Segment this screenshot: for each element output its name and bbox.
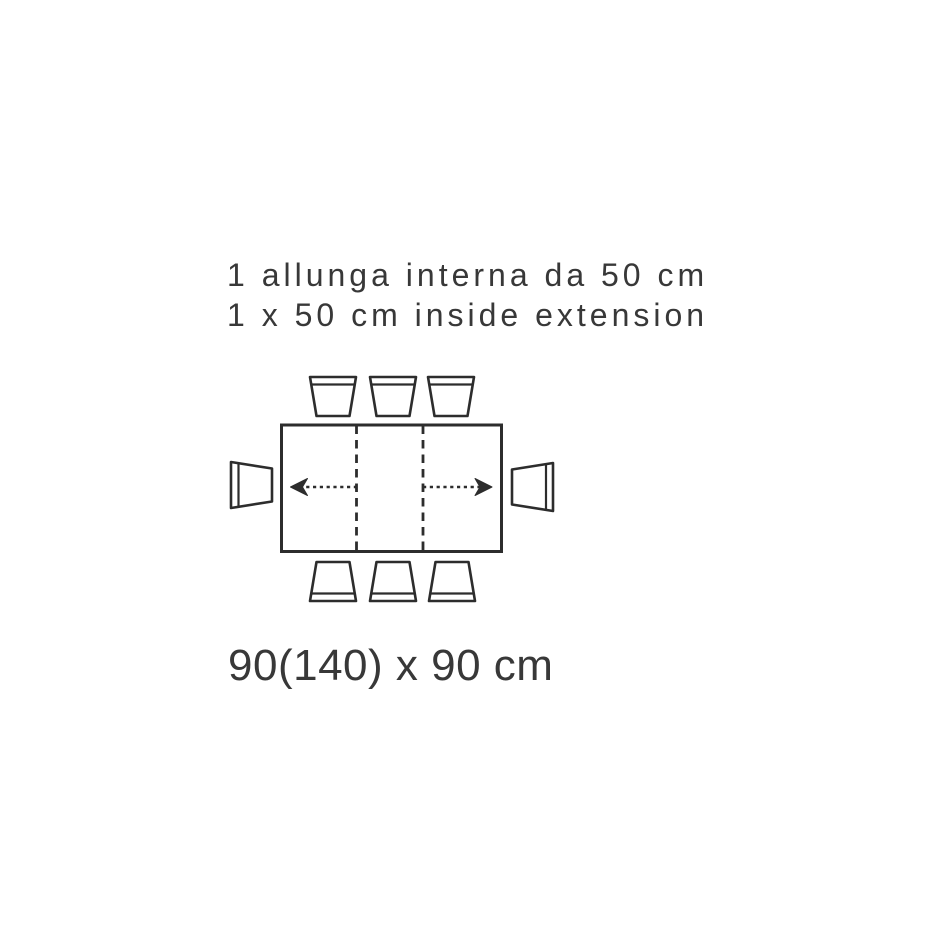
chair-bottom-1-icon [310,562,356,601]
table-plan-diagram [0,0,950,950]
dimension-label: 90(140) x 90 cm [228,644,553,688]
chair-bottom-3-icon [429,562,475,601]
chair-right-icon [512,463,553,511]
chair-bottom-2-icon [370,562,416,601]
product-diagram-canvas: 1 allunga interna da 50 cm 1 x 50 cm ins… [0,0,950,950]
chair-top-1-icon [310,377,356,416]
chair-top-2-icon [370,377,416,416]
chair-left-icon [231,462,272,508]
chair-top-3-icon [428,377,474,416]
table-top [282,425,502,552]
